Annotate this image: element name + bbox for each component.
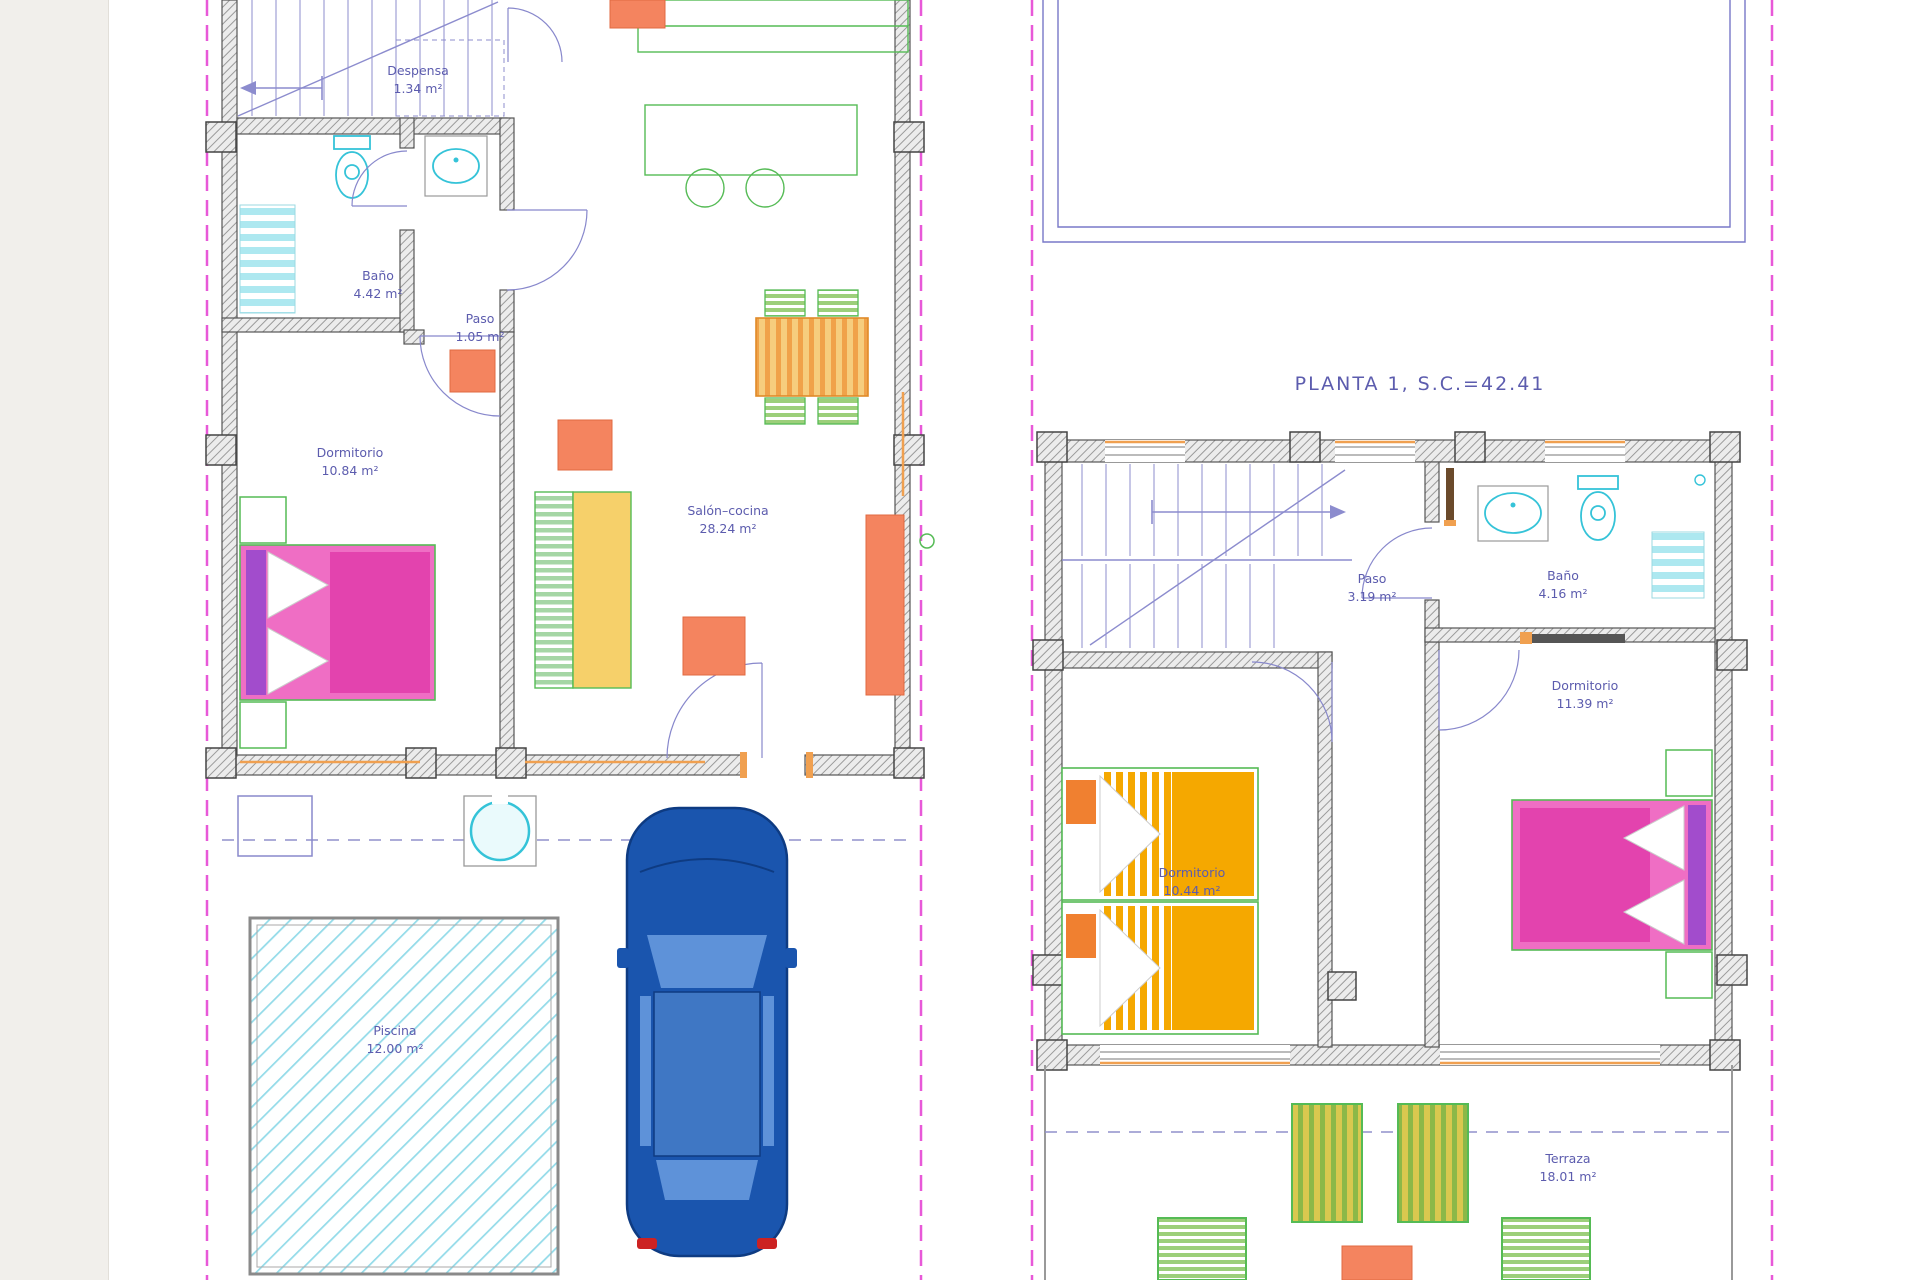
room-label-piscina: Piscina 12.00 m²	[367, 1022, 424, 1058]
room-name: Baño	[1547, 568, 1579, 583]
utility-box	[238, 796, 312, 856]
window	[1100, 1045, 1290, 1065]
room-name: Baño	[362, 268, 394, 283]
room-area: 18.01 m²	[1540, 1168, 1597, 1186]
room-area: 4.16 m²	[1539, 585, 1588, 603]
room-name: Salón–cocina	[687, 503, 768, 518]
window	[1545, 440, 1625, 462]
terrace-chair	[1158, 1218, 1246, 1280]
sideboard	[866, 515, 904, 695]
stairs	[238, 0, 504, 116]
towel-bar	[1446, 468, 1454, 522]
room-name: Dormitorio	[317, 445, 384, 460]
room-name: Dormitorio	[1159, 865, 1226, 880]
room-label-despensa: Despensa 1.34 m²	[387, 62, 449, 98]
room-label-dormitorio-gf: Dormitorio 10.84 m²	[317, 444, 384, 480]
double-bed-pink	[240, 497, 435, 748]
kitchen-island	[645, 105, 857, 175]
room-label-salon-cocina: Salón–cocina 28.24 m²	[687, 502, 768, 538]
sink	[425, 136, 487, 196]
nightstand	[240, 497, 286, 543]
room-area: 10.84 m²	[317, 462, 384, 480]
room-area: 10.44 m²	[1159, 882, 1226, 900]
floor-plan-drawing	[0, 0, 1920, 1280]
room-name: Terraza	[1545, 1151, 1590, 1166]
kitchen	[638, 0, 908, 207]
toilet	[1578, 476, 1618, 540]
double-bed-pink	[1512, 750, 1712, 998]
chair	[818, 290, 858, 316]
kitchen-cabinet	[610, 0, 665, 28]
room-name: Paso	[1358, 571, 1387, 586]
chair	[765, 290, 805, 316]
radiator-bar	[1530, 634, 1625, 643]
ground-floor-plan	[206, 0, 924, 1274]
first-floor-plan	[1033, 0, 1747, 1280]
chair	[818, 398, 858, 424]
towel-radiator	[1652, 532, 1704, 598]
dresser	[450, 350, 495, 392]
chair	[765, 398, 805, 424]
swimming-pool	[250, 918, 558, 1274]
room-area: 12.00 m²	[367, 1040, 424, 1058]
room-label-dormitorio-left: Dormitorio 10.44 m²	[1159, 864, 1226, 900]
room-area: 11.39 m²	[1552, 695, 1619, 713]
side-table	[558, 420, 612, 470]
shower	[240, 205, 295, 313]
nightstand	[1666, 952, 1712, 998]
sun-lounger	[1292, 1104, 1362, 1222]
car-top-view	[617, 808, 797, 1256]
terrace-chair	[1502, 1218, 1590, 1280]
stair-direction-arrow	[1330, 505, 1346, 519]
sofa-seat	[573, 492, 631, 688]
room-area: 3.19 m²	[1348, 588, 1397, 606]
floor-plan-canvas: Despensa 1.34 m² Baño 4.42 m² Paso 1.05 …	[0, 0, 1920, 1280]
round-table	[464, 794, 536, 866]
patio	[222, 794, 910, 1274]
room-area: 1.05 m²	[456, 328, 505, 346]
room-area: 1.34 m²	[387, 80, 449, 98]
side-window	[640, 996, 651, 1146]
stairs	[1062, 464, 1352, 648]
towel-bar-end	[1444, 520, 1456, 526]
room-area: 4.42 m²	[354, 285, 403, 303]
room-label-dormitorio-right: Dormitorio 11.39 m²	[1552, 677, 1619, 713]
roof-outline	[1043, 0, 1745, 242]
taillight	[637, 1238, 657, 1249]
rug	[683, 617, 745, 675]
nightstand	[240, 702, 286, 748]
room-name: Paso	[466, 311, 495, 326]
headboard	[1066, 914, 1096, 958]
terrace-table	[1342, 1246, 1412, 1280]
room-name: Despensa	[387, 63, 449, 78]
dining-table	[756, 318, 868, 396]
room-label-bano-gf: Baño 4.42 m²	[354, 267, 403, 303]
dining-set	[756, 290, 868, 424]
terrace	[1045, 1065, 1732, 1280]
window	[1440, 1045, 1660, 1065]
twin-beds-orange	[1062, 768, 1258, 1034]
room-name: Piscina	[373, 1023, 416, 1038]
car-mirror	[785, 948, 797, 968]
room-label-terraza: Terraza 18.01 m²	[1540, 1150, 1597, 1186]
sofa-back	[535, 492, 573, 688]
drain	[1695, 475, 1705, 485]
sink	[1478, 486, 1548, 541]
room-label-paso-gf: Paso 1.05 m²	[456, 310, 505, 346]
side-window	[763, 996, 774, 1146]
headboard	[1066, 780, 1096, 824]
room-label-bano-f1: Baño 4.16 m²	[1539, 567, 1588, 603]
taillight	[757, 1238, 777, 1249]
stair-direction-arrow	[240, 81, 256, 95]
toilet	[334, 136, 370, 198]
rear-window	[656, 1160, 758, 1200]
radiator-bar-end	[1520, 632, 1532, 644]
sun-lounger	[1398, 1104, 1468, 1222]
window	[1335, 440, 1415, 462]
car-roof	[654, 992, 760, 1156]
bathroom-fixtures	[1444, 468, 1705, 644]
nightstand	[1666, 750, 1712, 796]
room-name: Dormitorio	[1552, 678, 1619, 693]
room-label-paso-f1: Paso 3.19 m²	[1348, 570, 1397, 606]
windshield	[647, 935, 767, 988]
car-mirror	[617, 948, 629, 968]
first-floor-title: PLANTA 1, S.C.=42.41	[1295, 373, 1546, 395]
room-area: 28.24 m²	[687, 520, 768, 538]
window	[1105, 440, 1185, 462]
